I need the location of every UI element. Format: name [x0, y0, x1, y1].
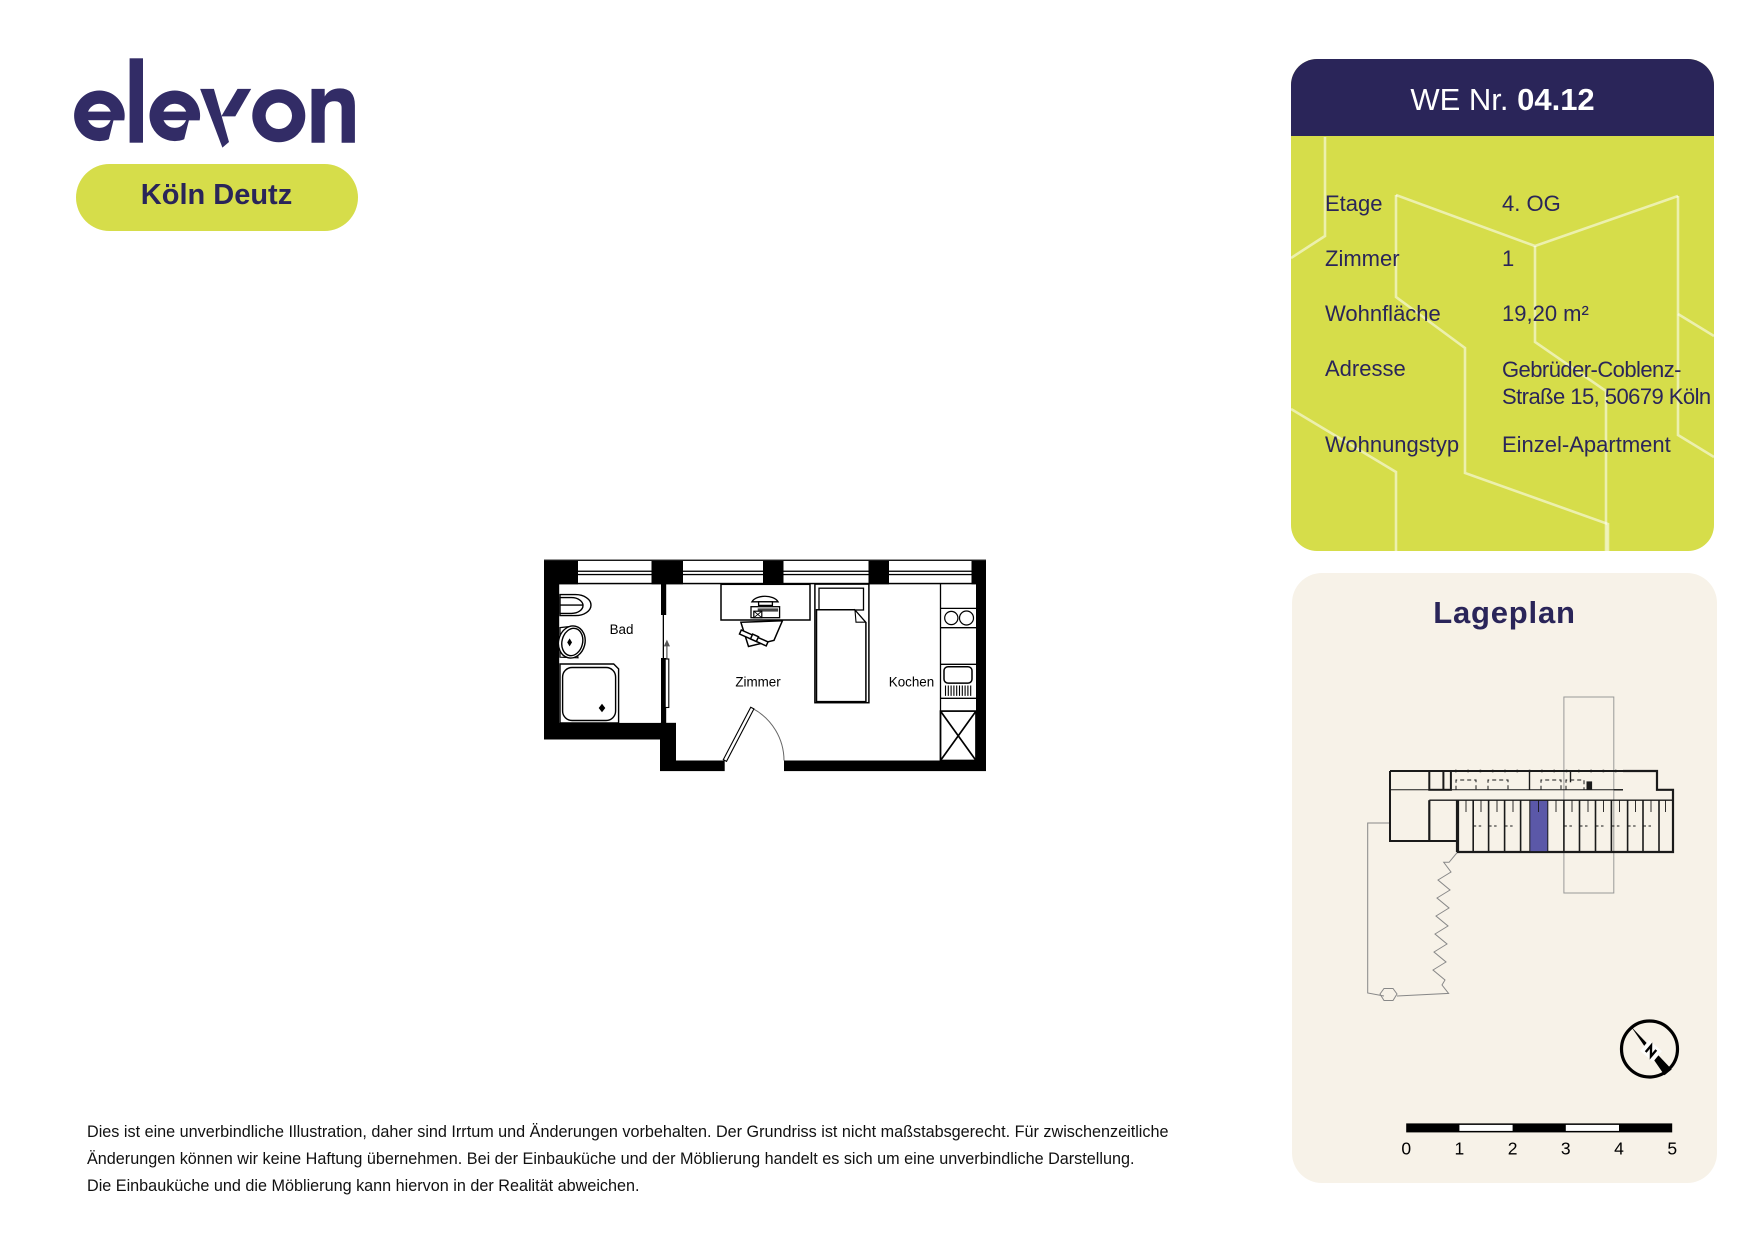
svg-text:Bad: Bad — [610, 622, 634, 637]
svg-text:Kochen: Kochen — [889, 675, 934, 690]
svg-text:5: 5 — [1667, 1139, 1677, 1159]
svg-text:0: 0 — [1401, 1139, 1411, 1159]
svg-text:4: 4 — [1614, 1139, 1624, 1159]
svg-text:1: 1 — [1455, 1139, 1465, 1159]
svg-text:Zimmer: Zimmer — [735, 675, 781, 690]
svg-text:2: 2 — [1508, 1139, 1518, 1159]
svg-text:3: 3 — [1561, 1139, 1571, 1159]
